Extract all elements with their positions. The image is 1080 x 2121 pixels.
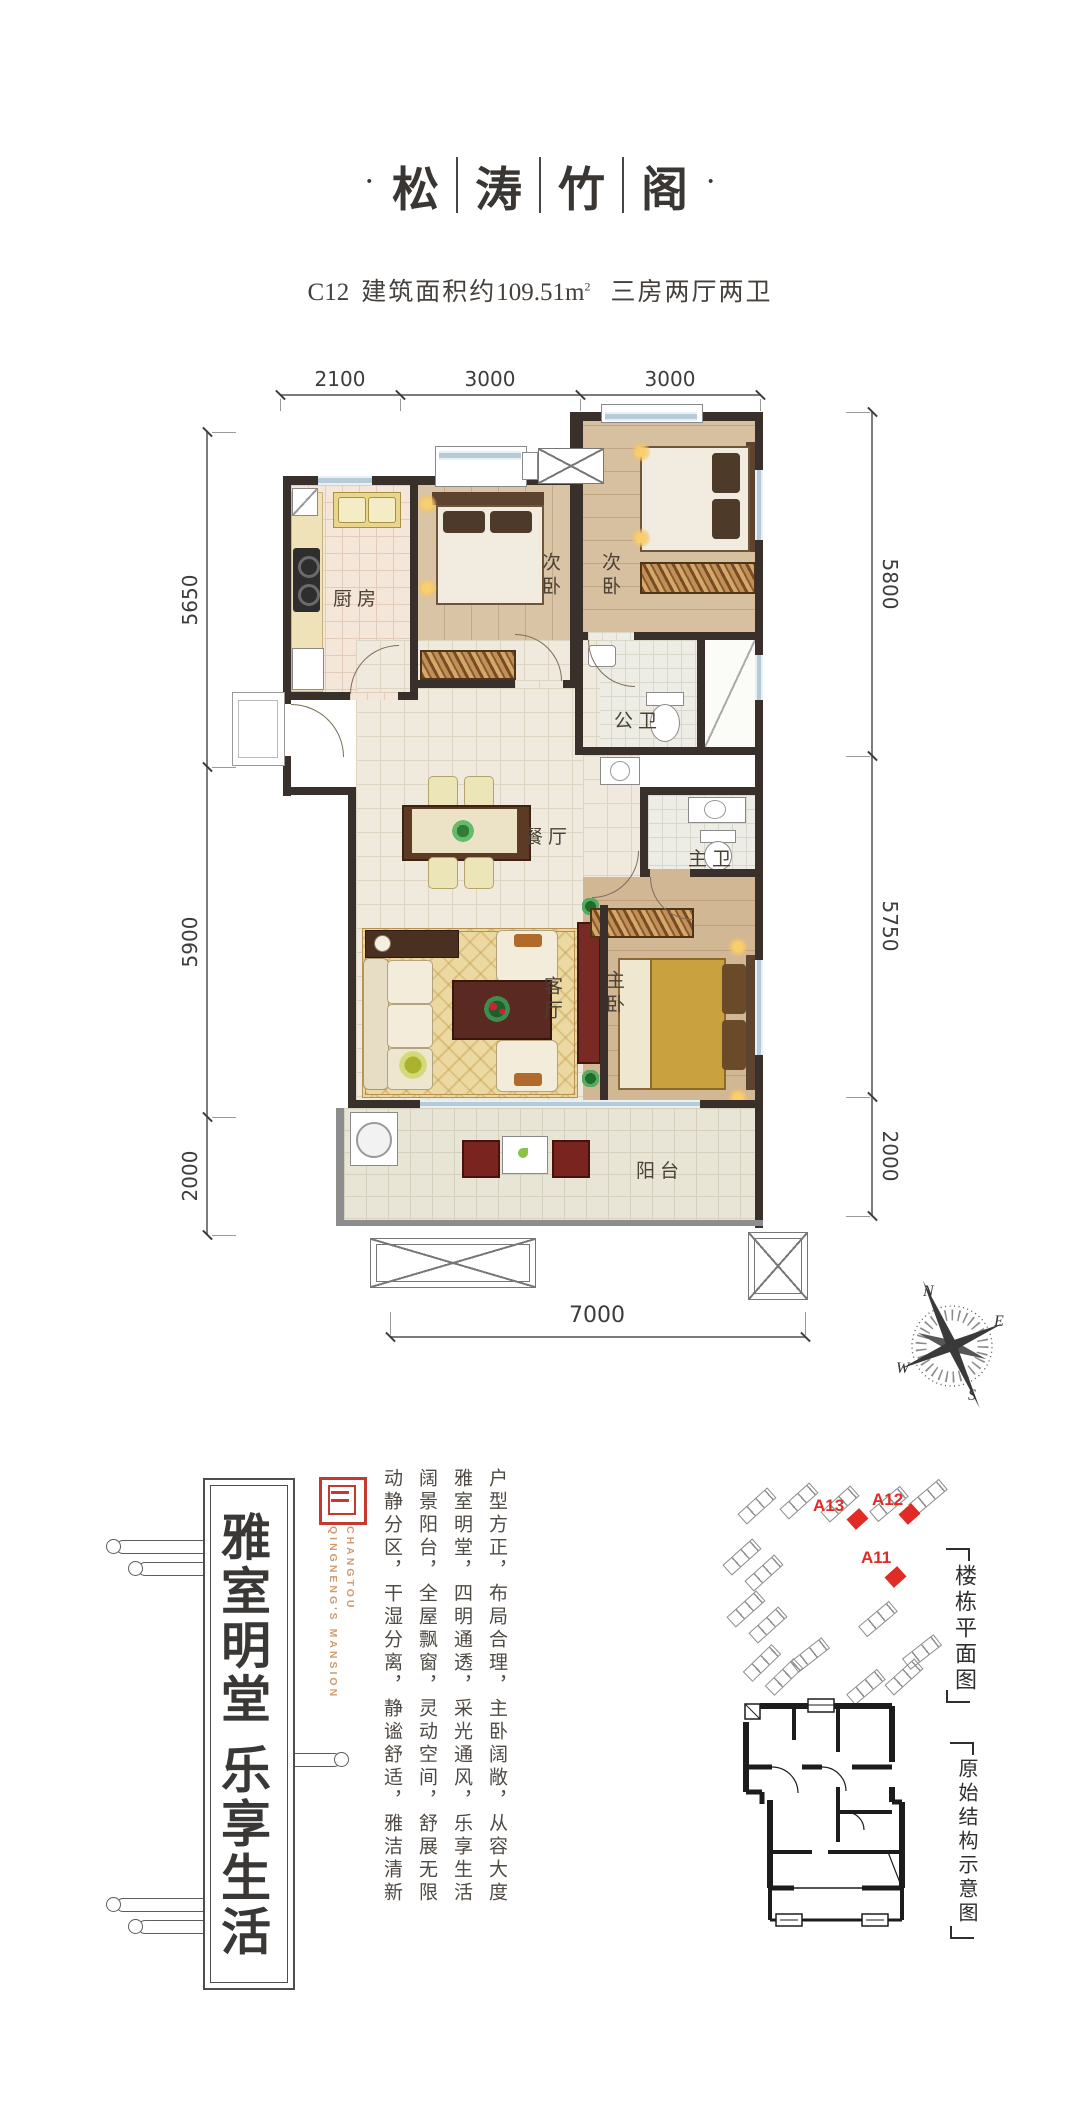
pillow [443,511,485,533]
caption-bracket [946,1548,970,1561]
bay-window-glass [605,412,697,421]
room-label-kitchen: 厨房 [333,584,381,611]
kitchen-window [318,476,372,485]
area-sup: 2 [584,280,590,294]
title-char: 涛 [475,151,522,220]
room-label-balcony: 阳台 [636,1156,684,1183]
sofa-seat [387,960,433,1004]
dim-left-2: 5900 [179,907,201,977]
pillow [722,964,746,1014]
equipment-platform [748,1232,808,1300]
window [755,960,763,1055]
wardrobe [640,562,756,594]
site-plan-caption: 楼栋平面图 [948,1564,980,1694]
pillow [722,1020,746,1070]
unit-label-a12: A12 [872,1490,903,1510]
master-bed [650,958,726,1090]
dim-extension [212,1117,236,1118]
scroll-arm [116,1540,210,1554]
bedside-lamp [728,937,748,957]
dining-chair [464,857,494,889]
sofa-back [363,958,389,1090]
building-outline [858,1601,898,1637]
dining-chair [428,857,458,889]
wall [348,795,356,1108]
structure-caption: 原始结构示意图 [952,1758,981,1926]
building-outline [902,1634,942,1670]
unit-summary: C12建筑面积约109.51m2三房两厅两卫 [0,272,1080,308]
dim-bottom: 7000 [562,1305,632,1327]
building-outline [790,1637,830,1673]
dim-extension [212,767,236,768]
title-separator [539,157,541,213]
building-outline [744,1554,783,1591]
slogan-column: 动静分区，干湿分离，静谧舒适，雅洁清新 [374,1468,409,1938]
mbath-basin [704,800,726,819]
bay-window-glass [439,451,521,460]
caption-bracket [946,1690,970,1703]
brand-name-line2: QINGNENG'S MANSION [324,1526,341,1706]
meter-box [522,452,538,480]
dim-top-1: 2100 [305,368,375,390]
sink-basin [368,497,396,523]
room-label-bedroom-b: 次卧 [596,552,623,600]
description-columns: 户型方正，布局合理，主卧阔敞，从容大度 雅室明堂，四明通透，采光通风，乐享生活 … [372,1468,514,1938]
title-char: 竹 [558,151,605,220]
room-label-living: 客厅 [538,976,565,1024]
scroll-arm [287,1753,341,1767]
dim-extension [390,1312,391,1336]
wall [410,485,418,700]
dim-top-2: 3000 [455,368,525,390]
layout-label: 三房两厅两卫 [610,279,772,306]
dim-extension [846,1097,870,1098]
dim-left-1: 5650 [179,565,201,635]
title-dot-left: · [364,163,375,201]
floor-lamp [398,1050,428,1080]
scroll-arm [116,1898,210,1912]
vanity-basin [610,761,630,781]
utility-box [292,488,318,516]
door-gap [588,632,634,640]
dim-extension [580,399,581,411]
dim-extension [760,399,761,411]
dim-extension [212,1235,236,1236]
burner [298,556,320,578]
bedside-lamp [631,442,651,462]
window [755,655,763,700]
washer-drum [356,1122,392,1158]
area-label: 建筑面积约 [361,279,496,306]
compass-s: S [968,1387,976,1404]
dim-extension [846,412,870,413]
pillow [712,499,740,539]
title-separator [622,157,624,213]
caption-bracket [950,1742,974,1755]
brand-name-line1: CHANGTOU [341,1526,358,1706]
bed-headboard [746,955,755,1090]
brand-seal-icon [319,1477,367,1525]
slogan-column: 阔景阳台，全屋飘窗，灵动空间，舒展无限 [409,1468,444,1938]
title-dot-right: · [705,163,716,201]
floorplan-poster: · 松 涛 竹 阁 · C12建筑面积约109.51m2三房两厅两卫 2100 … [0,0,1080,2121]
dining-chair [464,776,494,808]
caption-bracket [950,1926,974,1939]
room-label-master-bath: 主卫 [688,844,736,871]
compass-e: E [993,1313,1004,1330]
compass-n: N [922,1283,935,1300]
area-value: 109.51 [496,279,565,306]
wall [575,640,583,755]
dim-right-2: 5750 [879,891,901,961]
plant [582,1070,599,1087]
title-char: 阁 [641,151,688,220]
pillow [712,453,740,493]
dim-right-1: 5800 [879,549,901,619]
dining-chair [428,776,458,808]
room-label-dining: 餐厅 [524,822,572,849]
scroll-ring [128,1561,143,1576]
burner [298,584,320,606]
wardrobe [420,650,516,680]
equipment-platform [370,1238,536,1288]
scroll-ring [128,1919,143,1934]
scroll-ring [106,1539,121,1554]
dim-extension [846,756,870,757]
dim-extension [805,1312,806,1336]
wall [640,787,763,795]
compass-rose: N E S W [880,1258,1025,1428]
table-flowers [484,996,510,1022]
dim-left-3: 2000 [179,1141,201,1211]
title-char: 松 [392,151,439,220]
dim-extension [280,399,281,411]
table-plant [452,820,474,842]
structure-diagram [742,1692,912,1942]
sofa-seat [387,1004,433,1048]
dim-extension [400,399,401,411]
title-separator [456,157,458,213]
page-title: · 松 涛 竹 阁 · [0,150,1080,220]
bedside-lamp [417,494,437,514]
room-label-public-bath: 公卫 [614,706,662,733]
ac-platform [538,448,604,484]
building-outline [748,1606,787,1643]
window [755,470,763,540]
scroll-ring [334,1752,349,1767]
brand-name: CHANGTOU QINGNENG'S MANSION [322,1526,358,1706]
door-gap [515,680,563,688]
balcony-rail [336,1220,763,1226]
armchair-cushion [514,934,542,947]
balcony-slider [420,1100,700,1108]
wall [697,640,705,755]
building-outline [737,1487,776,1524]
unit-marker-a11 [884,1566,906,1588]
entry-door-arc [291,704,344,757]
pillow [490,511,532,533]
bedside-lamp [417,578,437,598]
fridge [292,648,324,690]
porch-step [238,700,278,758]
room-label-bedroom-a: 次卧 [536,552,563,600]
balcony-wall [336,1108,344,1226]
table-leaf [518,1148,528,1158]
door-gap [650,869,690,877]
dim-extension [212,432,236,433]
dim-right-3: 2000 [879,1121,901,1191]
wall [640,795,648,877]
sink-basin [338,497,366,523]
unit-marker-a13 [846,1508,868,1530]
dim-top-3: 3000 [635,368,705,390]
slogan-column: 雅室明堂，四明通透，采光通风，乐享生活 [444,1468,479,1938]
banner-slogan: 雅室明堂 乐享生活 [216,1496,278,1974]
armchair-cushion [514,1073,542,1086]
tv-console [577,922,601,1064]
shaft [705,640,755,747]
wall [575,747,763,755]
dim-extension [846,1216,870,1217]
console-lamp [374,935,391,952]
bed-headboard [432,492,544,505]
unit-label-a13: A13 [813,1496,844,1516]
room-label-master-bedroom: 主卧 [600,970,627,1018]
unit-label-a11: A11 [861,1548,891,1568]
scroll-ring [106,1897,121,1912]
balcony-stool [552,1140,590,1178]
bedside-lamp [631,528,651,548]
area-unit: m [565,279,584,306]
slogan-column: 户型方正，布局合理，主卧阔敞，从容大度 [479,1468,514,1938]
balcony-stool [462,1140,500,1178]
compass-w: W [896,1360,911,1377]
wall [283,787,356,795]
unit-code: C12 [308,279,350,306]
